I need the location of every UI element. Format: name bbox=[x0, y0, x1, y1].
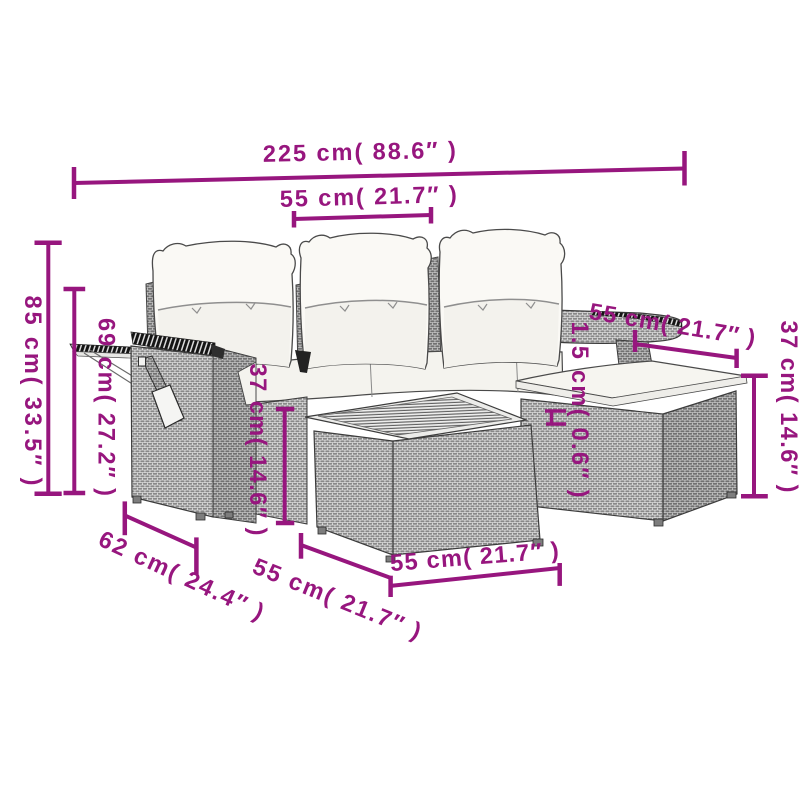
svg-text:55 cm( 21.7″ ): 55 cm( 21.7″ ) bbox=[279, 182, 457, 213]
svg-text:37 cm( 14.6″ ): 37 cm( 14.6″ ) bbox=[244, 364, 270, 536]
svg-text:1.5 cm( 0.6″ ): 1.5 cm( 0.6″ ) bbox=[566, 322, 592, 498]
svg-text:85 cm( 33.5″ ): 85 cm( 33.5″ ) bbox=[19, 296, 45, 486]
svg-text:69 cm( 27.2″ ): 69 cm( 27.2″ ) bbox=[93, 318, 119, 496]
svg-text:37 cm( 14.6″ ): 37 cm( 14.6″ ) bbox=[775, 321, 800, 493]
